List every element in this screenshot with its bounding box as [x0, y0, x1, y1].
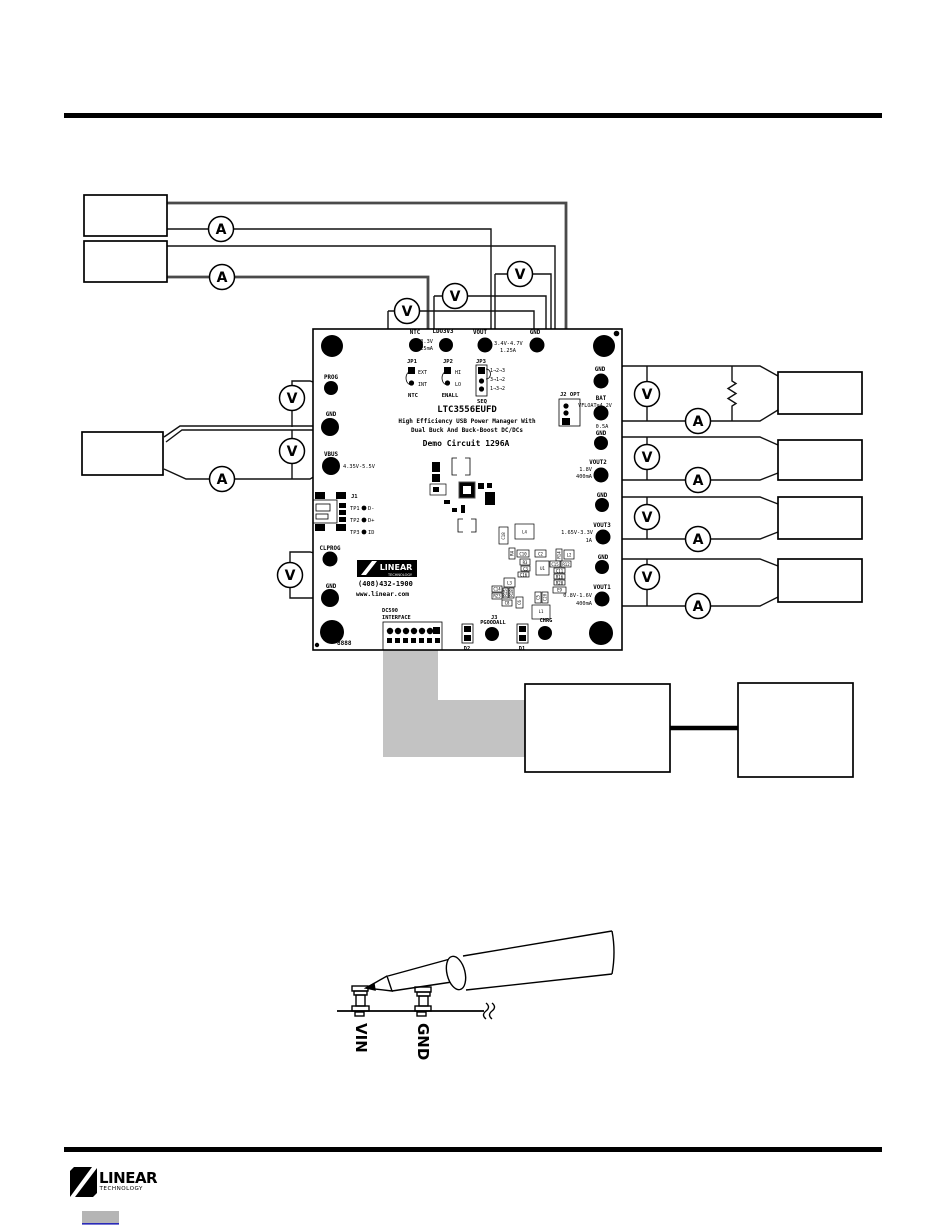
svg-text:R14: R14	[557, 551, 562, 559]
ldo3v3-current: 25mA	[420, 346, 434, 352]
voltmeter: V	[278, 563, 303, 588]
vout3-current: 1A	[586, 538, 593, 544]
svg-text:A: A	[693, 414, 704, 430]
jp3-opt3: 1→3→2	[490, 386, 505, 392]
svg-text:C5: C5	[536, 595, 541, 600]
tp1-label: TP1	[350, 506, 360, 512]
pad-vout	[478, 338, 493, 353]
jp2-name: JP2	[443, 359, 453, 365]
component: L1	[532, 605, 550, 619]
jp2-function: ENALL	[442, 393, 459, 399]
bat-current: 0.5A	[596, 424, 610, 430]
pad-gnd-left1-label: GND	[326, 412, 337, 418]
footer-rule	[64, 1147, 882, 1152]
voltmeter: V	[635, 505, 660, 530]
ammeter: A	[210, 467, 235, 492]
tp1-signal: D-	[368, 506, 374, 512]
svg-text:C11: C11	[556, 569, 564, 574]
svg-text:A: A	[216, 222, 227, 238]
pad-gnd-r4	[595, 560, 609, 574]
svg-text:A: A	[693, 532, 704, 548]
tp2-signal: D+	[368, 518, 374, 524]
component: C15	[550, 561, 560, 567]
svg-text:R23: R23	[493, 594, 501, 599]
svg-text:C18: C18	[501, 532, 506, 540]
component: C5	[535, 592, 541, 603]
footer-logo: LINEAR TECHNOLOGY	[70, 1167, 158, 1197]
pad-vbus	[322, 457, 340, 475]
svg-text:L2: L2	[567, 553, 572, 558]
svg-text:E9: E9	[557, 588, 562, 593]
vout-voltage: 3.4V-4.7V	[494, 341, 524, 347]
pgoodall-label: PGOODALL	[480, 620, 506, 626]
pad-gnd-r3	[595, 498, 609, 512]
jp2-opt1: HI	[455, 370, 461, 376]
component: C18	[499, 527, 508, 544]
tp2-label: TP2	[350, 518, 360, 524]
component: R16	[554, 574, 565, 580]
voltmeter: V	[635, 565, 660, 590]
d1-label: D1	[519, 646, 525, 652]
footer-logo-line2: TECHNOLOGY	[99, 1186, 144, 1192]
jp1-function: NTC	[408, 393, 418, 399]
svg-text:R12: R12	[562, 562, 570, 567]
vendor-web: www.linear.com	[356, 590, 409, 598]
component: C6	[516, 597, 523, 608]
component: C16	[518, 572, 529, 578]
pad-gnd-top-label: GND	[530, 330, 541, 336]
pad-vout1-label: VOUT1	[593, 585, 611, 591]
ldo3v3-voltage: 3.3V	[420, 339, 434, 345]
break-symbol	[484, 1003, 489, 1019]
document-page: NTC LDO3V3 3.3V 25mA VOUT 3.4V-4.7V 1.25…	[0, 0, 950, 1229]
vout-current: 1.25A	[500, 348, 517, 354]
jp3-opt2: 3→1→2	[490, 377, 505, 383]
voltmeter: V	[280, 386, 305, 411]
vbus-range: 4.35V-5.5V	[343, 464, 376, 470]
svg-text:V: V	[285, 568, 296, 584]
footer-link-box	[82, 1211, 119, 1224]
pc-box	[738, 683, 853, 777]
svg-text:R3: R3	[523, 560, 528, 565]
voltmeter: V	[443, 284, 468, 309]
ammeter: A	[210, 265, 235, 290]
ammeter: A	[686, 409, 711, 434]
turret-gnd	[415, 987, 431, 1011]
pad-vout2-label: VOUT2	[589, 460, 607, 466]
svg-text:V: V	[515, 267, 526, 283]
pad-ldo3v3-label: LDO3V3	[433, 329, 454, 335]
pad-prog-label: PROG	[324, 375, 338, 381]
svg-text:A: A	[217, 472, 228, 488]
svg-text:A: A	[693, 599, 704, 615]
svg-text:C14: C14	[493, 587, 501, 592]
pad-gnd-r2	[594, 436, 608, 450]
chrg-label: CHRG	[540, 618, 553, 624]
wires-left	[164, 381, 331, 598]
pad-bat-label: BAT	[596, 396, 607, 402]
svg-text:A: A	[693, 473, 704, 489]
svg-text:C3: C3	[523, 567, 528, 572]
component: C14	[492, 586, 502, 592]
ammeter: A	[209, 217, 234, 242]
d2-label: D2	[464, 646, 470, 652]
svg-text:C15: C15	[551, 562, 559, 567]
bat-float: VFLOAT=4.2V	[578, 403, 612, 409]
jp2-opt2: LO	[455, 382, 461, 388]
vendor-phone: (408)432-1900	[358, 580, 413, 588]
svg-text:V: V	[287, 444, 298, 460]
board-part-number: LTC3556EUFD	[437, 405, 497, 415]
ammeter: A	[686, 594, 711, 619]
vout2-voltage: 1.8V	[579, 467, 593, 473]
jp3-name: JP3	[476, 359, 486, 365]
jp3-opt1: 1→2→3	[490, 368, 505, 374]
component: L2	[564, 550, 574, 559]
controller-box	[525, 684, 670, 772]
board-logo-line2: TECHNOLOGY	[387, 573, 413, 577]
component: C10	[517, 550, 529, 557]
component: U1	[536, 561, 549, 575]
top-rule	[64, 113, 882, 118]
svg-text:R4: R4	[510, 551, 515, 556]
component: C3	[521, 566, 530, 572]
vout3-voltage: 1.65V-3.3V	[561, 530, 594, 536]
pad-gnd-r1	[594, 374, 609, 389]
svg-text:V: V	[642, 387, 653, 403]
component: R3	[520, 559, 530, 565]
svg-text:V: V	[642, 570, 653, 586]
vin-turret-label: VIN	[352, 1023, 370, 1053]
tp3-signal: ID	[368, 530, 374, 536]
board-desc-2: Dual Buck And Buck-Boost DC/DCs	[411, 427, 523, 434]
pad-gnd-r1-label: GND	[595, 367, 606, 373]
voltmeter: V	[395, 299, 420, 324]
j3-label1: DC590	[382, 608, 398, 614]
vout2-current: 400mA	[576, 474, 593, 480]
svg-text:V: V	[287, 391, 298, 407]
pad-ntc-label: NTC	[410, 330, 421, 336]
pad-vout2	[594, 468, 609, 483]
probe-illustration: VIN GND	[337, 931, 614, 1060]
svg-text:R16: R16	[556, 575, 564, 580]
svg-text:V: V	[402, 304, 413, 320]
turret-vin	[352, 986, 369, 1011]
equipment-box-right-3	[778, 497, 862, 539]
pad-gnd-left1	[321, 418, 339, 436]
svg-text:V: V	[450, 289, 461, 305]
footer-logo-line1: LINEAR	[99, 1169, 158, 1187]
equipment-box-right-4	[778, 559, 862, 602]
component: C8	[502, 600, 512, 606]
svg-text:L1: L1	[539, 609, 544, 614]
probe-body	[366, 931, 614, 992]
svg-text:A: A	[217, 270, 228, 286]
equipment-box-top-2	[84, 241, 167, 282]
svg-text:C2: C2	[538, 552, 543, 557]
component: L4	[515, 524, 534, 539]
svg-text:C20: C20	[543, 593, 548, 601]
pad-vout3	[596, 530, 611, 545]
j1-name: J1	[351, 494, 358, 500]
figure-canvas: NTC LDO3V3 3.3V 25mA VOUT 3.4V-4.7V 1.25…	[0, 0, 950, 1229]
gnd-turret-label: GND	[414, 1023, 432, 1060]
equipment-box-right-1	[778, 372, 862, 414]
component: C20	[542, 592, 548, 603]
svg-text:R20: R20	[556, 581, 564, 586]
voltmeter: V	[635, 382, 660, 407]
equipment-box-top-1	[84, 195, 167, 236]
jp1-opt1: EXT	[418, 370, 427, 376]
board-serial: 8888	[337, 640, 352, 647]
component: R4	[509, 548, 515, 559]
pad-vout3-label: VOUT3	[593, 523, 611, 529]
voltmeter: V	[508, 262, 533, 287]
component: C2	[535, 550, 546, 557]
pad-vout1	[595, 592, 610, 607]
load-resistor	[728, 366, 736, 421]
board-logo-line1: LINEAR	[380, 563, 413, 572]
component: L3	[504, 578, 515, 587]
j3-label2: INTERFACE	[382, 615, 411, 621]
pad-clprog-label: CLPROG	[320, 546, 341, 552]
component: E9	[553, 587, 566, 593]
svg-text:V: V	[642, 510, 653, 526]
pad-prog	[324, 381, 338, 395]
ammeter: A	[686, 468, 711, 493]
jp1-name: JP1	[407, 359, 418, 365]
component: C11	[554, 568, 565, 574]
svg-text:R15: R15	[503, 589, 508, 597]
tp3-label: TP3	[350, 530, 360, 536]
vout1-current: 400mA	[576, 601, 593, 607]
svg-text:L4: L4	[522, 530, 527, 535]
board-desc-3: Demo Circuit 1296A	[423, 438, 510, 448]
voltmeter: V	[280, 439, 305, 464]
vout1-voltage: 0.8V-1.6V	[563, 593, 593, 599]
svg-text:V: V	[642, 450, 653, 466]
link-highlight	[82, 1211, 119, 1223]
jp1-opt2: INT	[418, 382, 427, 388]
pad-bat	[594, 406, 609, 421]
component: R23	[492, 593, 502, 599]
component: R20	[554, 580, 565, 586]
pad-clprog	[323, 552, 338, 567]
svg-text:C10: C10	[519, 552, 527, 557]
svg-text:R18: R18	[509, 589, 514, 597]
pad-gnd-top	[530, 338, 545, 353]
svg-text:C16: C16	[520, 573, 528, 578]
break-symbol	[490, 1003, 495, 1019]
voltmeter: V	[635, 445, 660, 470]
pad-chrg	[538, 626, 552, 640]
board-desc-1: High Efficiency USB Power Manager With	[398, 418, 536, 425]
component: R14	[556, 549, 562, 561]
ribbon-cable	[383, 650, 525, 757]
pad-gnd-r4-label: GND	[598, 555, 609, 561]
component: R18	[509, 588, 514, 598]
svg-text:C8: C8	[505, 601, 510, 606]
pad-ldo3v3	[439, 338, 453, 352]
ammeter: A	[686, 527, 711, 552]
pad-vout-label: VOUT	[473, 330, 487, 336]
equipment-box-right-2	[778, 440, 862, 480]
equipment-box-left	[82, 432, 163, 475]
svg-text:U1: U1	[540, 566, 545, 571]
j2-label: J2 OPT	[560, 392, 581, 398]
svg-text:L3: L3	[507, 581, 512, 586]
component: R15	[503, 588, 508, 598]
pad-pgoodall	[485, 627, 499, 641]
svg-text:C6: C6	[517, 600, 522, 605]
component: R12	[561, 561, 571, 567]
pad-gnd-left2	[321, 589, 339, 607]
